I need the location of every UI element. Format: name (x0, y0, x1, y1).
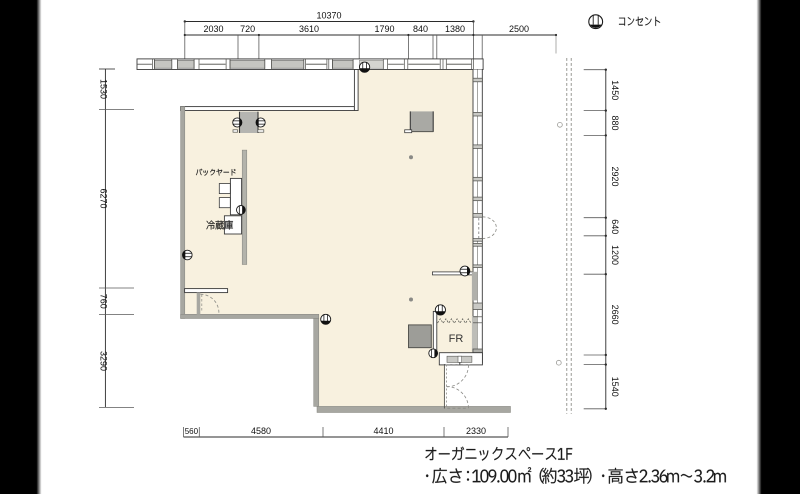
svg-text:1200: 1200 (610, 245, 620, 265)
svg-text:640: 640 (610, 219, 620, 234)
svg-text:840: 840 (413, 24, 428, 34)
svg-text:2660: 2660 (610, 305, 620, 325)
svg-text:6270: 6270 (99, 188, 109, 208)
svg-text:10370: 10370 (316, 10, 341, 20)
svg-text:760: 760 (99, 294, 109, 309)
svg-text:4410: 4410 (373, 426, 393, 436)
svg-text:1530: 1530 (99, 79, 109, 99)
svg-text:2030: 2030 (203, 24, 223, 34)
svg-text:FR: FR (449, 333, 464, 345)
svg-text:560: 560 (185, 427, 199, 436)
svg-text:1450: 1450 (610, 80, 620, 100)
svg-text:2330: 2330 (466, 426, 486, 436)
svg-text:2920: 2920 (610, 166, 620, 186)
svg-text:1380: 1380 (445, 24, 465, 34)
svg-text:3610: 3610 (299, 24, 319, 34)
svg-text:720: 720 (240, 24, 255, 34)
svg-text:880: 880 (610, 115, 620, 130)
svg-text:4580: 4580 (251, 426, 271, 436)
svg-text:1790: 1790 (374, 24, 394, 34)
svg-text:3290: 3290 (99, 351, 109, 371)
svg-text:1540: 1540 (610, 377, 620, 397)
svg-text:2500: 2500 (509, 24, 529, 34)
